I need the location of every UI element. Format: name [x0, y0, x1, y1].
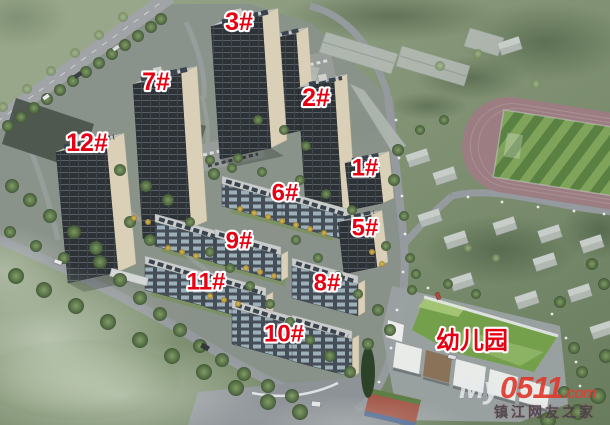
watermark-brand-suffix: .com: [563, 385, 596, 402]
tree: [93, 57, 105, 69]
tree: [492, 254, 500, 262]
yellow-tree: [237, 206, 243, 212]
watermark-brand-red: 0511: [500, 370, 563, 405]
yellow-tree: [235, 301, 241, 307]
yellow-tree: [271, 273, 277, 279]
tree: [554, 296, 566, 308]
tree: [205, 247, 215, 257]
tree: [531, 79, 541, 89]
car: [311, 401, 320, 407]
street-lamp: [398, 157, 401, 160]
tree: [70, 48, 80, 58]
tree: [443, 279, 453, 289]
tree: [405, 253, 415, 263]
yellow-tree: [251, 210, 257, 216]
tree: [94, 30, 104, 40]
tree: [399, 211, 409, 221]
building-label-kindergarten: 幼儿园: [436, 327, 508, 355]
tree: [435, 61, 445, 71]
tree: [257, 167, 267, 177]
building-label-8: 8#: [314, 270, 341, 297]
building-label-9: 9#: [226, 228, 253, 255]
tree: [362, 338, 374, 350]
tree: [80, 66, 92, 78]
street-lamp: [404, 233, 407, 236]
building-label-5: 5#: [352, 215, 379, 242]
tree: [260, 394, 276, 410]
tree: [153, 307, 167, 321]
tree: [93, 255, 107, 269]
tree: [324, 350, 336, 362]
tree: [233, 153, 243, 163]
tree: [68, 298, 84, 314]
tree: [372, 304, 384, 316]
tree: [392, 144, 404, 156]
tower-facade: [211, 15, 271, 159]
watermark-tagline: 镇江网友之家: [459, 405, 596, 419]
tree: [586, 258, 598, 270]
tree: [5, 179, 19, 193]
tree: [54, 84, 66, 96]
tree: [208, 168, 220, 180]
tree: [411, 269, 421, 279]
tower-facade: [133, 73, 191, 239]
yellow-tree: [379, 261, 385, 267]
street-lamp: [501, 201, 504, 204]
street-lamp: [378, 381, 381, 384]
tree: [407, 285, 417, 295]
yellow-tree: [165, 245, 171, 251]
yellow-tree: [193, 253, 199, 259]
street-lamp: [575, 361, 578, 364]
tree: [119, 39, 131, 51]
yellow-tree: [265, 214, 271, 220]
tree: [164, 348, 180, 364]
tree: [23, 193, 37, 207]
building-label-12: 12#: [66, 129, 108, 157]
tree: [140, 180, 152, 192]
street-lamp: [402, 271, 405, 274]
street-lamp: [467, 196, 470, 199]
tree: [15, 111, 27, 123]
building-label-1: 1#: [352, 155, 379, 182]
tree: [321, 189, 331, 199]
watermark-brand-light: My: [459, 370, 500, 405]
tree: [227, 163, 237, 173]
watermark: My0511.com 镇江网友之家: [459, 372, 596, 419]
yellow-tree: [321, 230, 327, 236]
street-lamp: [395, 119, 398, 122]
yellow-tree: [257, 269, 263, 275]
tree: [471, 289, 481, 299]
tree: [568, 342, 580, 354]
tree: [279, 125, 289, 135]
tree: [285, 389, 299, 403]
tree: [22, 84, 32, 94]
yellow-tree: [131, 215, 137, 221]
building-label-6: 6#: [272, 180, 299, 207]
yellow-tree: [221, 297, 227, 303]
tree: [36, 282, 52, 298]
tree: [114, 164, 126, 176]
tree: [415, 125, 425, 135]
tree: [347, 205, 357, 215]
tree: [8, 268, 24, 284]
building-label-11: 11#: [187, 269, 226, 296]
building-label-7: 7#: [142, 68, 170, 96]
tree: [301, 141, 311, 151]
tree: [353, 289, 363, 299]
tree: [388, 174, 400, 186]
roof-bulkhead: [317, 73, 327, 82]
tree: [265, 299, 275, 309]
tree: [228, 380, 244, 396]
street-lamp: [427, 287, 430, 290]
tree: [2, 120, 14, 132]
tree: [225, 263, 235, 273]
street-lamp: [573, 210, 576, 213]
street-lamp: [603, 213, 606, 216]
tree: [118, 12, 128, 22]
site-plan-rendering: 3#7#2#12#1#6#5#9#11#8#10#幼儿园: [0, 0, 610, 425]
tree: [261, 379, 275, 393]
tree: [215, 353, 229, 367]
tree: [384, 324, 396, 336]
tree: [464, 244, 472, 252]
tree: [245, 281, 255, 291]
yellow-tree: [243, 265, 249, 271]
tree: [100, 314, 116, 330]
yellow-tree: [279, 218, 285, 224]
tree: [381, 241, 391, 251]
tree: [145, 21, 157, 33]
tree: [292, 404, 308, 420]
tree: [89, 241, 103, 255]
tree: [162, 194, 174, 206]
tree: [133, 291, 147, 305]
building-label-10: 10#: [264, 321, 304, 348]
building-label-2: 2#: [302, 84, 330, 112]
yellow-tree: [179, 249, 185, 255]
building-label-3: 3#: [225, 8, 253, 36]
tree: [144, 234, 156, 246]
street-lamp: [565, 337, 568, 340]
yellow-tree: [307, 226, 313, 232]
tree: [113, 273, 127, 287]
yellow-tree: [293, 222, 299, 228]
tree: [205, 155, 215, 165]
tree: [473, 49, 483, 59]
watermark-brand: My0511.com: [459, 372, 596, 403]
tree: [291, 235, 301, 245]
tree: [237, 367, 251, 381]
tree: [344, 366, 356, 378]
tree: [196, 364, 212, 380]
street-lamp: [551, 313, 554, 316]
yellow-tree: [145, 219, 151, 225]
tree: [30, 240, 42, 252]
tree: [305, 335, 315, 345]
street-lamp: [401, 195, 404, 198]
tree: [185, 217, 195, 227]
tree: [253, 115, 263, 125]
tree: [155, 13, 167, 25]
street-lamp: [396, 309, 399, 312]
tree: [132, 30, 144, 42]
tree: [173, 323, 187, 337]
street-lamp: [537, 206, 540, 209]
tree: [313, 253, 323, 263]
tree: [43, 209, 57, 223]
tree: [132, 332, 148, 348]
yellow-tree: [369, 249, 375, 255]
tree: [28, 102, 40, 114]
tree: [598, 278, 610, 290]
tree: [46, 66, 56, 76]
aerial-rendering: 3#7#2#12#1#6#5#9#11#8#10#幼儿园 My0511.com …: [0, 0, 610, 425]
tree: [439, 115, 449, 125]
slab-end-wall: [281, 251, 288, 281]
tree: [67, 225, 81, 239]
tree: [4, 226, 16, 238]
street-lamp: [390, 347, 393, 350]
